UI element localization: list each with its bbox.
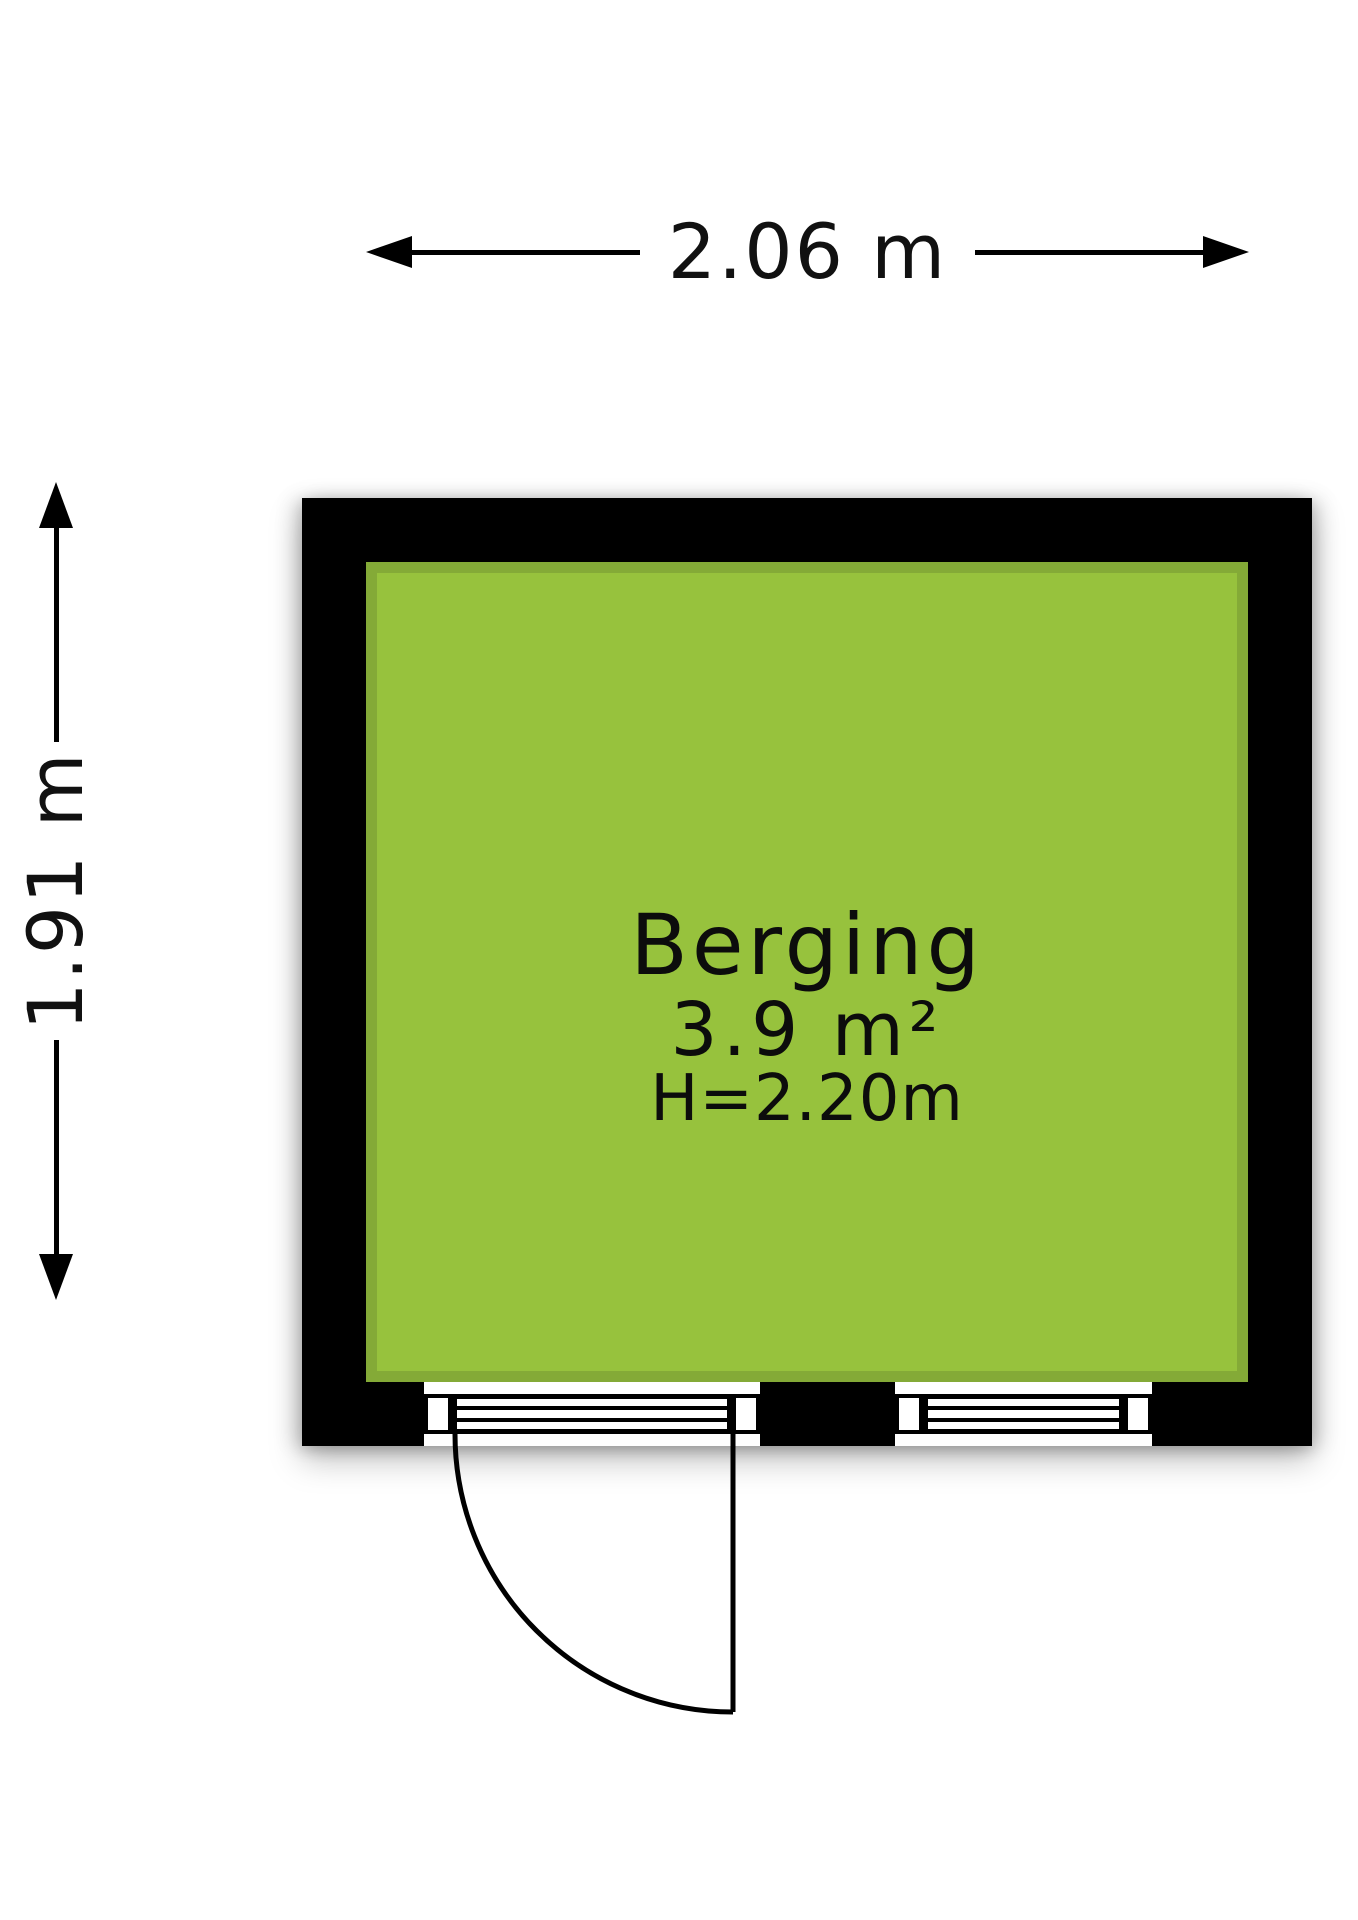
door-panel-line <box>457 1418 727 1422</box>
window-jamb <box>895 1394 923 1434</box>
window-jamb <box>1124 1394 1152 1434</box>
window-glazing-line <box>928 1406 1119 1410</box>
window-glazing-line <box>928 1418 1119 1422</box>
door-panel-line <box>457 1406 727 1410</box>
arrow-up-icon <box>39 482 73 528</box>
room-area: 3.9 m² <box>377 993 1237 1067</box>
width-dimension: 2.06 m <box>366 214 1249 290</box>
width-dimension-label: 2.06 m <box>640 214 975 290</box>
window-glazing <box>923 1394 1124 1434</box>
dimension-line <box>54 1040 59 1254</box>
arrow-left-icon <box>366 236 412 268</box>
window-opening <box>895 1382 1152 1446</box>
height-dimension-label: 1.91 m <box>18 751 94 1030</box>
door-swing-arc <box>455 1434 733 1712</box>
door-opening <box>424 1382 760 1446</box>
room-label: Berging 3.9 m² H=2.20m <box>377 903 1237 1131</box>
door-jamb <box>732 1394 760 1434</box>
dimension-line <box>975 250 1203 255</box>
door-jamb <box>424 1394 452 1434</box>
dimension-line <box>412 250 640 255</box>
room-ceiling-height: H=2.20m <box>377 1067 1237 1131</box>
room-floor: Berging 3.9 m² H=2.20m <box>366 562 1248 1382</box>
room-walls: Berging 3.9 m² H=2.20m <box>302 498 1312 1446</box>
dimension-line <box>54 524 59 742</box>
arrow-down-icon <box>39 1254 73 1300</box>
arrow-right-icon <box>1203 236 1249 268</box>
room-name: Berging <box>377 903 1237 987</box>
door-panel <box>452 1394 732 1434</box>
